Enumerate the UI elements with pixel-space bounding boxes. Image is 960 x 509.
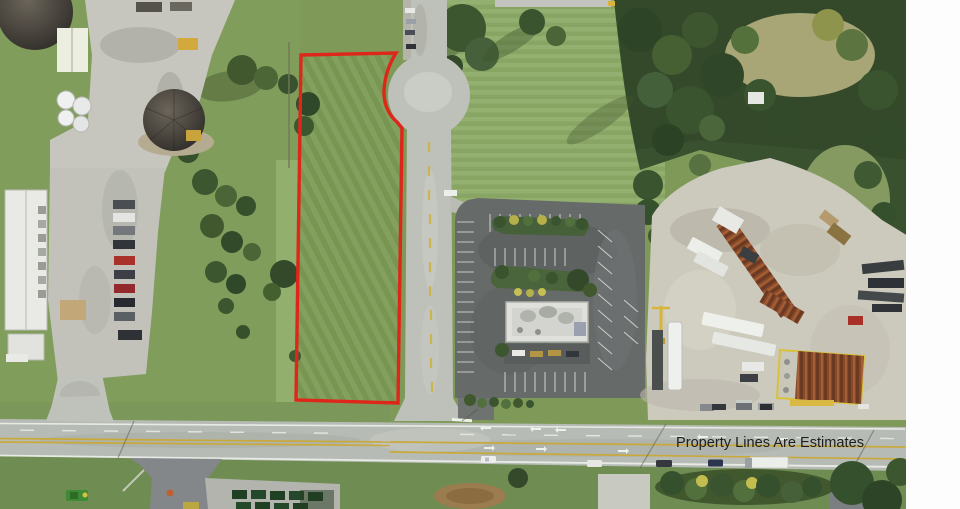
gable-building-northwest	[57, 28, 88, 72]
dumpster-row	[652, 330, 663, 390]
rust-roof-building	[777, 350, 864, 404]
photo-border-right	[906, 0, 960, 509]
white-trailer	[668, 322, 682, 390]
storage-building-west	[5, 190, 47, 360]
restaurant-building	[506, 302, 588, 342]
drive-thru-lane	[495, 343, 590, 364]
john-deere-tractor	[66, 490, 88, 501]
restaurant-site	[455, 198, 645, 420]
aerial-property-photo: Property Lines Are Estimates	[0, 0, 960, 509]
median-bushes	[655, 469, 835, 505]
disclaimer-text: Property Lines Are Estimates	[676, 435, 864, 451]
aerial-scene: Property Lines Are Estimates	[0, 0, 960, 509]
